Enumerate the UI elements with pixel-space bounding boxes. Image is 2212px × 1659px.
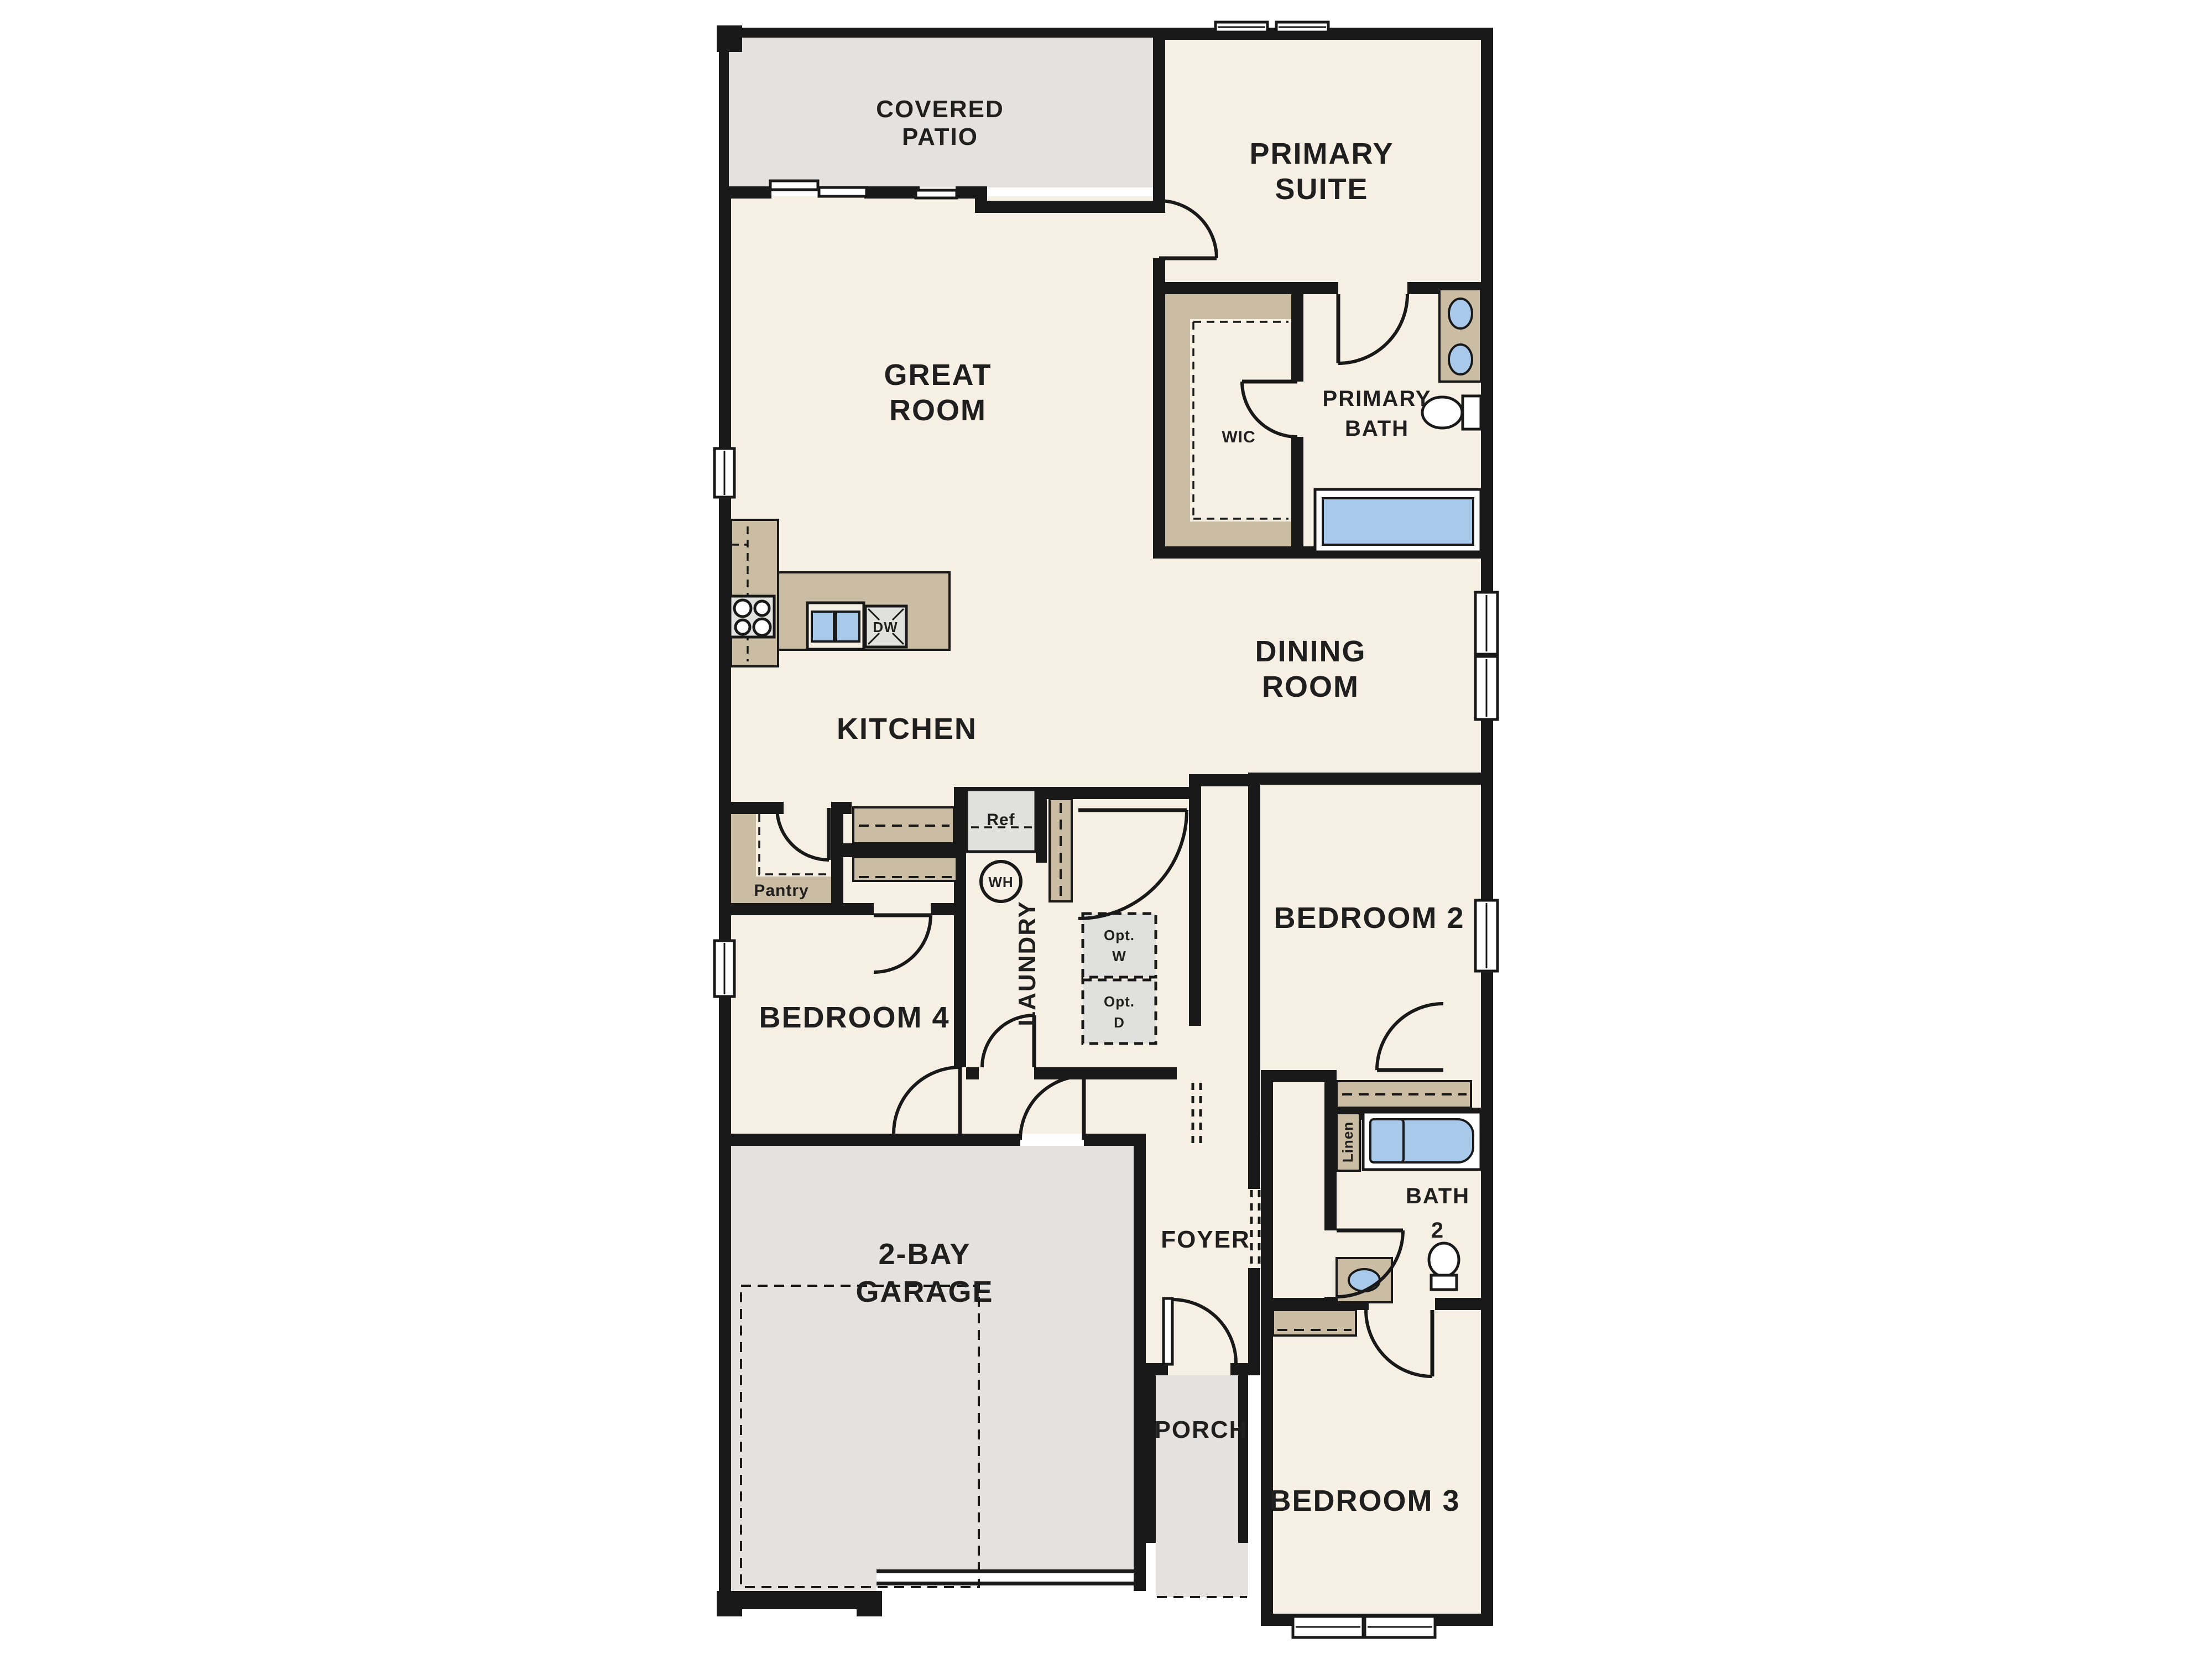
fixture-label-opt-d: Opt. [1104, 993, 1135, 1010]
window [1475, 656, 1498, 719]
bathtub [1363, 1112, 1481, 1170]
room-label-bedroom2: BEDROOM 2 [1274, 901, 1464, 935]
cooktop [730, 596, 774, 637]
fixture-label-wh: WH [988, 874, 1013, 890]
window [916, 190, 957, 198]
room-label-great-room: ROOM [889, 394, 987, 427]
fixture-label-opt-w: Opt. [1104, 927, 1135, 943]
room-label-covered-patio: PATIO [902, 123, 978, 150]
dryer-optional [1083, 980, 1156, 1044]
fixture-label-opt-d: D [1114, 1014, 1125, 1031]
fixture-label-ref: Ref [987, 811, 1015, 829]
floor-plan-drawing: COVERED PATIO PRIMARY SUITE GREAT ROOM W… [0, 0, 2212, 1659]
room-label-bedroom3: BEDROOM 3 [1269, 1484, 1460, 1517]
window [1475, 900, 1498, 971]
primary-sink [1449, 345, 1472, 374]
room-label-dining-room: DINING [1255, 635, 1366, 668]
wic-shelf [1187, 294, 1291, 319]
bath2-toilet [1429, 1243, 1459, 1290]
window [714, 941, 734, 997]
room-label-kitchen: KITCHEN [837, 712, 977, 745]
room-label-foyer: FOYER [1161, 1226, 1250, 1253]
window [1215, 22, 1267, 32]
kitchen-sink-basin [836, 612, 859, 641]
garage-floor [731, 1146, 1134, 1591]
floor-plan-page: COVERED PATIO PRIMARY SUITE GREAT ROOM W… [0, 0, 2212, 1659]
room-label-porch: PORCH [1155, 1416, 1248, 1443]
room-label-great-room: GREAT [884, 358, 992, 392]
wic-shelf [1165, 294, 1190, 546]
wic-shelf [1187, 521, 1291, 546]
room-label-garage: GARAGE [855, 1275, 993, 1308]
primary-shower [1315, 489, 1481, 552]
fixture-label-pantry: Pantry [754, 881, 808, 900]
room-label-bath2: BATH [1406, 1184, 1470, 1208]
window [1293, 1616, 1363, 1637]
fixture-label-linen: Linen [1339, 1121, 1356, 1162]
kitchen-wall-counter [731, 520, 778, 666]
room-label-bedroom4: BEDROOM 4 [759, 1001, 950, 1034]
window [1276, 22, 1328, 32]
fixture-label-dw: DW [873, 619, 898, 635]
washer-optional [1083, 914, 1156, 977]
room-label-bath2: 2 [1431, 1218, 1444, 1243]
room-label-primary-suite: PRIMARY [1249, 137, 1394, 170]
bedroom4-closet [853, 857, 957, 881]
room-label-covered-patio: COVERED [876, 96, 1004, 123]
kitchen-sink-basin [812, 612, 834, 641]
room-label-wic: WIC [1222, 428, 1255, 446]
room-label-laundry: LAUNDRY [1014, 900, 1041, 1026]
room-label-primary-bath: PRIMARY [1323, 387, 1432, 411]
room-label-garage: 2-BAY [878, 1238, 971, 1271]
bedroom3-closet [1273, 1310, 1356, 1335]
garage-door [877, 1569, 1134, 1588]
window [714, 448, 734, 497]
room-label-primary-bath: BATH [1345, 416, 1409, 441]
porch-floor [1156, 1375, 1248, 1597]
room-label-primary-suite: SUITE [1275, 173, 1368, 206]
bath2-sink [1349, 1269, 1380, 1291]
window [1365, 1616, 1435, 1637]
room-label-dining-room: ROOM [1262, 670, 1359, 703]
window [1475, 592, 1498, 654]
fixture-label-opt-w: W [1112, 948, 1126, 964]
primary-sink [1449, 299, 1472, 328]
